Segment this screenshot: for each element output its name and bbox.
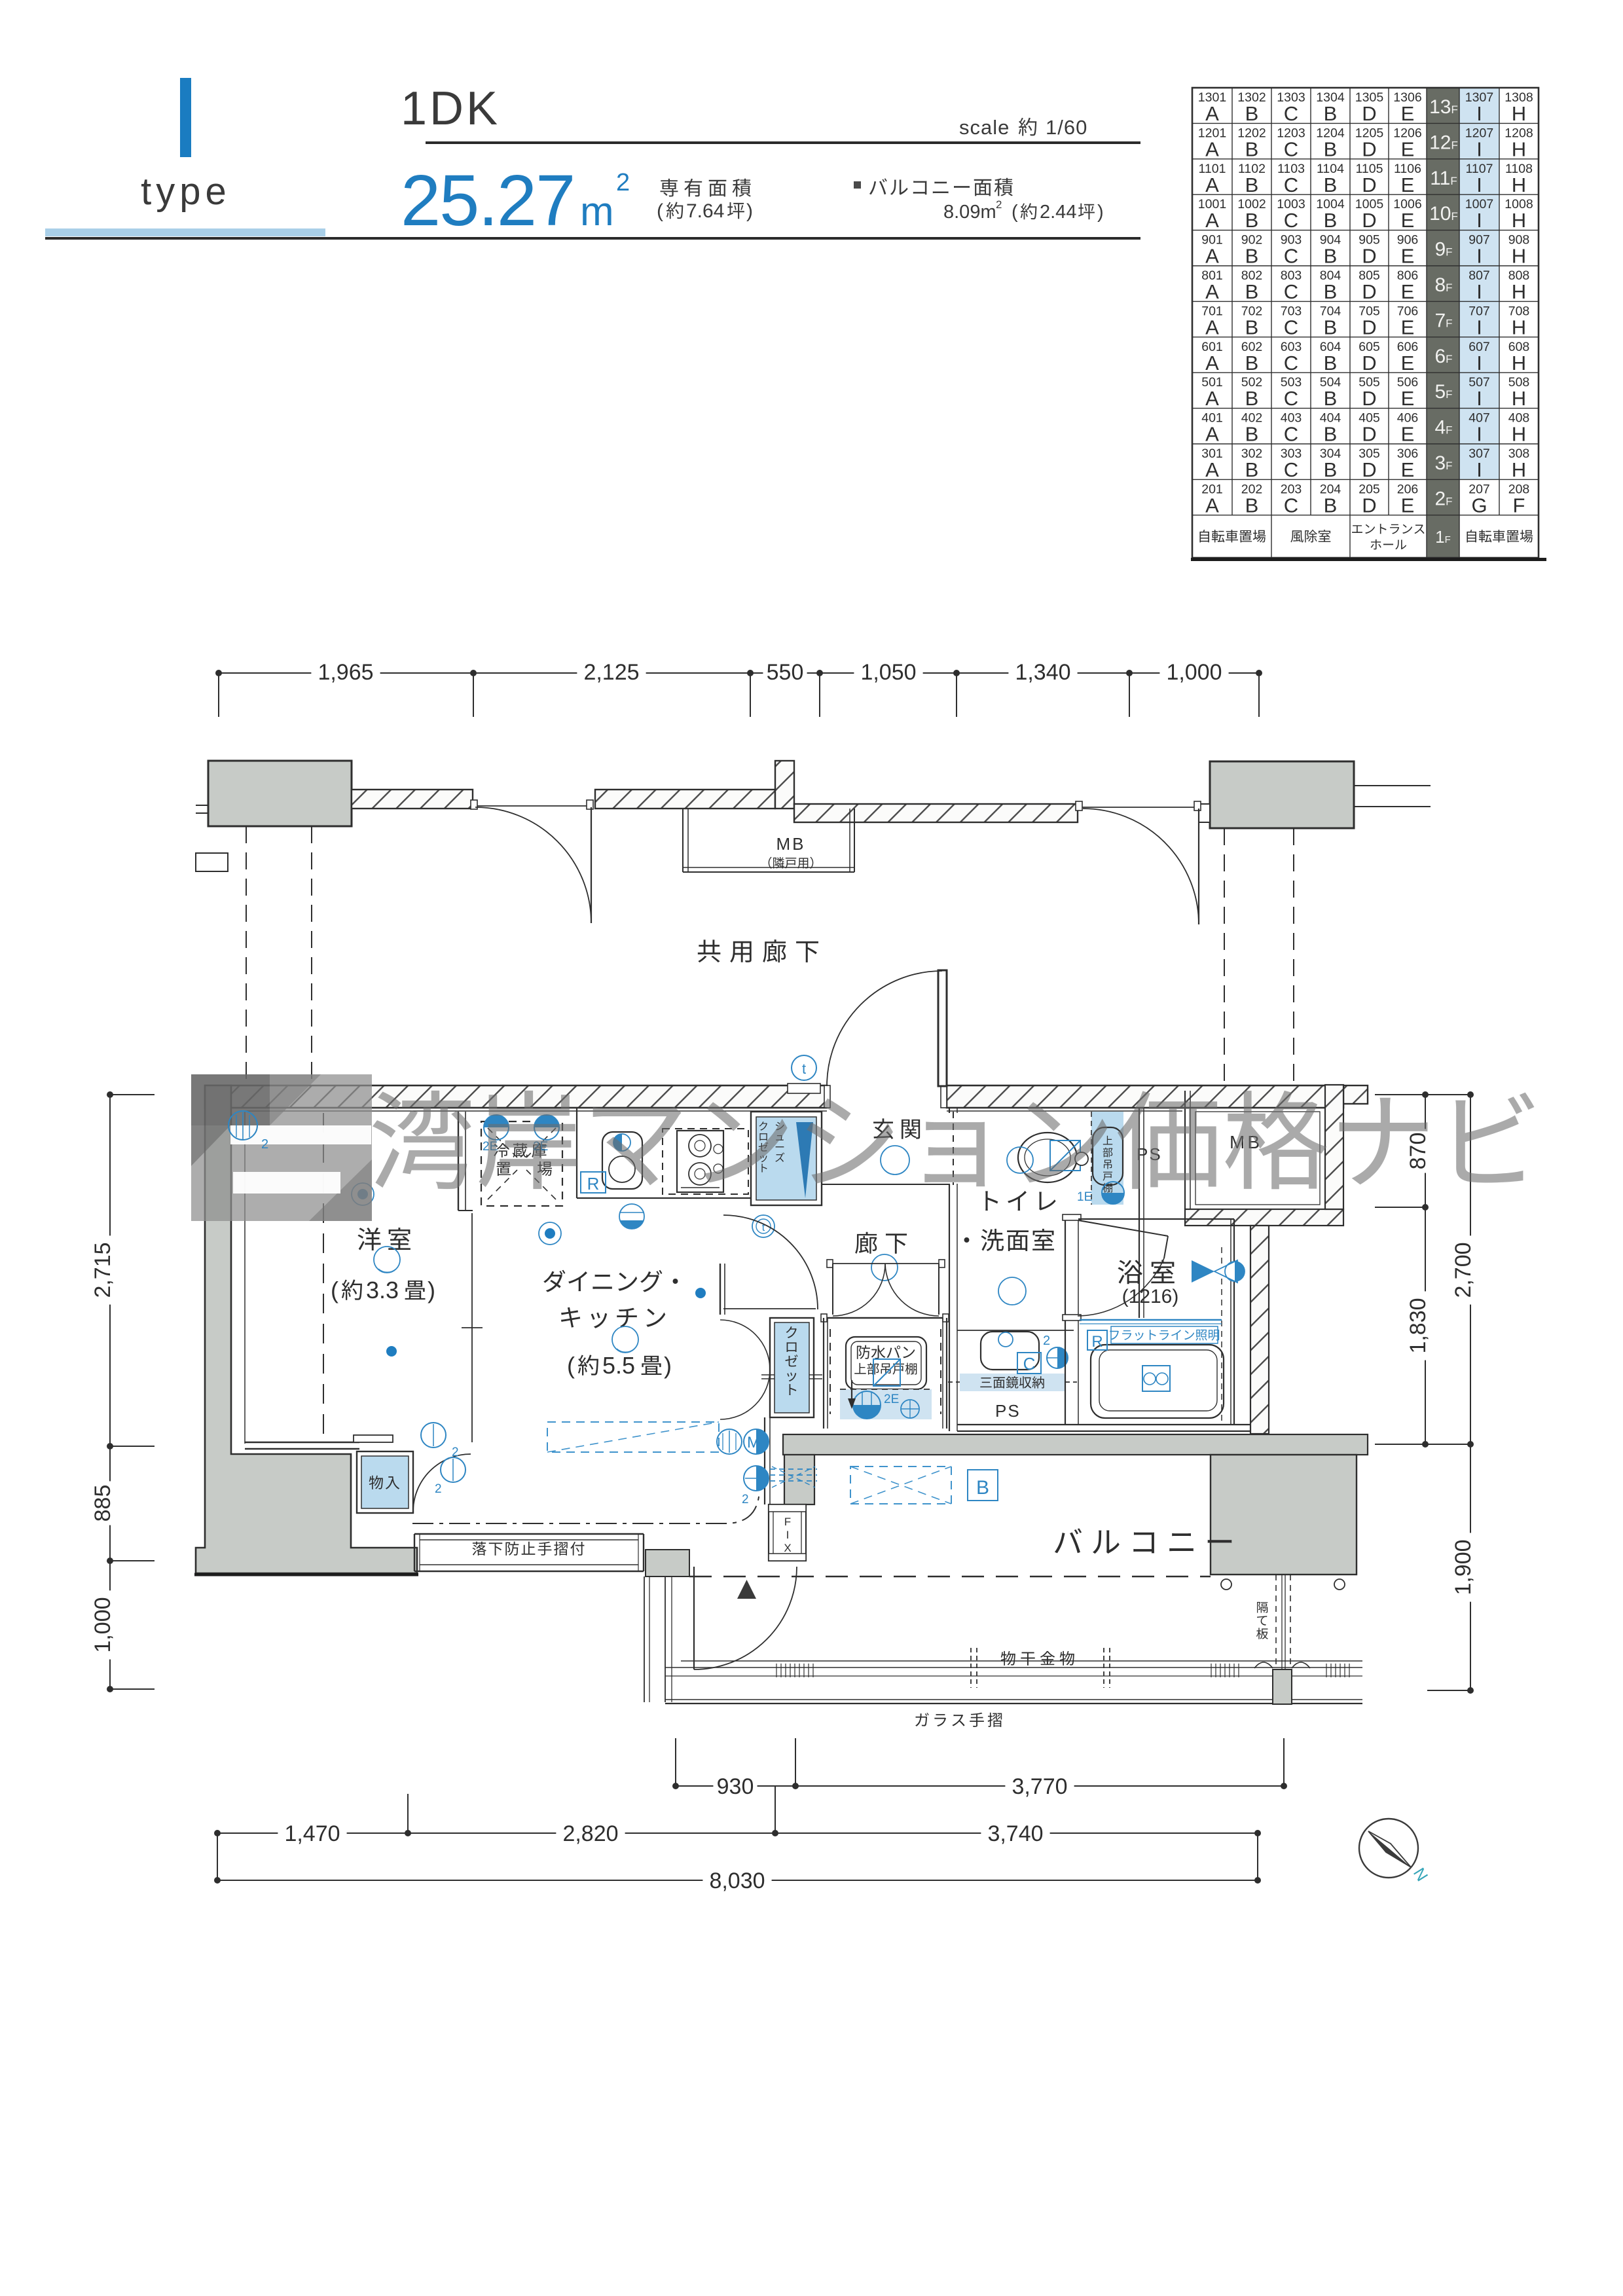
svg-text:A: A bbox=[1205, 209, 1219, 232]
svg-text:t: t bbox=[802, 1061, 806, 1077]
svg-text:1,340: 1,340 bbox=[1015, 660, 1070, 685]
svg-text:B: B bbox=[1324, 245, 1338, 268]
svg-text:H: H bbox=[1512, 173, 1526, 196]
svg-text:C: C bbox=[1284, 280, 1298, 303]
svg-text:D: D bbox=[1362, 173, 1376, 196]
svg-text:I: I bbox=[1476, 137, 1482, 160]
svg-text:): ) bbox=[1097, 202, 1104, 223]
svg-text:G: G bbox=[1471, 494, 1487, 517]
svg-text:A: A bbox=[1205, 423, 1219, 446]
svg-text:M: M bbox=[747, 1434, 760, 1451]
svg-text:E: E bbox=[1401, 173, 1415, 196]
svg-text:A: A bbox=[1205, 280, 1219, 303]
svg-text:E: E bbox=[1401, 280, 1415, 303]
svg-text:B: B bbox=[1245, 387, 1259, 410]
svg-text:X: X bbox=[784, 1542, 791, 1554]
svg-text:(: ( bbox=[567, 1352, 575, 1379]
svg-text:R: R bbox=[587, 1174, 600, 1194]
svg-text:I: I bbox=[1476, 280, 1482, 303]
svg-text:I: I bbox=[1476, 316, 1482, 338]
svg-text:D: D bbox=[1362, 137, 1376, 160]
svg-text:B: B bbox=[1245, 423, 1259, 446]
svg-text:C: C bbox=[1284, 102, 1298, 125]
svg-text:B: B bbox=[1324, 137, 1338, 160]
svg-text:E: E bbox=[1401, 316, 1415, 338]
svg-text:B: B bbox=[1324, 280, 1338, 303]
svg-text:1,470: 1,470 bbox=[284, 1821, 340, 1846]
svg-text:1,900: 1,900 bbox=[1451, 1539, 1476, 1595]
svg-text:D: D bbox=[1362, 245, 1376, 268]
svg-text:D: D bbox=[1362, 352, 1376, 374]
svg-text:PS: PS bbox=[995, 1401, 1021, 1421]
svg-text:C: C bbox=[1284, 423, 1298, 446]
svg-text:H: H bbox=[1512, 352, 1526, 374]
svg-text:1,830: 1,830 bbox=[1406, 1298, 1431, 1353]
svg-text:A: A bbox=[1205, 494, 1219, 517]
svg-text:I: I bbox=[1476, 423, 1482, 446]
svg-text:E: E bbox=[1401, 387, 1415, 410]
svg-text:2,125: 2,125 bbox=[583, 660, 639, 685]
svg-text:B: B bbox=[1245, 458, 1259, 481]
svg-text:B: B bbox=[1245, 280, 1259, 303]
svg-text:type: type bbox=[141, 170, 231, 213]
svg-text:B: B bbox=[1324, 352, 1338, 374]
svg-text:8.09m: 8.09m bbox=[943, 202, 996, 223]
svg-text:C: C bbox=[1284, 494, 1298, 517]
svg-text:F: F bbox=[1513, 494, 1525, 517]
svg-text:2: 2 bbox=[616, 169, 630, 196]
svg-text:A: A bbox=[1205, 352, 1219, 374]
svg-text:B: B bbox=[1324, 494, 1338, 517]
svg-text:1,050: 1,050 bbox=[860, 660, 916, 685]
svg-text:C: C bbox=[1284, 173, 1298, 196]
svg-text:B: B bbox=[1245, 173, 1259, 196]
svg-text:B: B bbox=[1245, 352, 1259, 374]
svg-text:H: H bbox=[1512, 280, 1526, 303]
svg-text:B: B bbox=[1324, 387, 1338, 410]
svg-text:PS: PS bbox=[1137, 1144, 1162, 1164]
svg-text:3,740: 3,740 bbox=[987, 1821, 1043, 1846]
svg-text:3,770: 3,770 bbox=[1012, 1774, 1067, 1799]
svg-text:I: I bbox=[1476, 209, 1482, 232]
svg-text:D: D bbox=[1362, 280, 1376, 303]
svg-text:A: A bbox=[1205, 387, 1219, 410]
svg-text:870: 870 bbox=[1406, 1133, 1431, 1170]
svg-text:930: 930 bbox=[717, 1774, 754, 1799]
svg-text:D: D bbox=[1362, 102, 1376, 125]
svg-text:C: C bbox=[1023, 1354, 1036, 1374]
svg-text:I: I bbox=[1476, 245, 1482, 268]
svg-text:scale: scale bbox=[959, 116, 1010, 139]
svg-text:2: 2 bbox=[996, 198, 1002, 211]
svg-text:1,000: 1,000 bbox=[90, 1597, 115, 1652]
svg-text:D: D bbox=[1362, 423, 1376, 446]
svg-text:H: H bbox=[1512, 458, 1526, 481]
svg-text:885: 885 bbox=[90, 1485, 115, 1522]
svg-text:3.3: 3.3 bbox=[366, 1277, 399, 1303]
svg-text:H: H bbox=[1512, 423, 1526, 446]
svg-text:(: ( bbox=[1012, 202, 1018, 223]
svg-text:2: 2 bbox=[742, 1493, 749, 1506]
svg-text:5.5: 5.5 bbox=[602, 1352, 635, 1379]
svg-text:D: D bbox=[1362, 316, 1376, 338]
svg-text:B: B bbox=[1245, 316, 1259, 338]
svg-text:H: H bbox=[1512, 137, 1526, 160]
svg-text:1DK: 1DK bbox=[401, 82, 500, 135]
svg-text:B: B bbox=[1245, 245, 1259, 268]
svg-text:A: A bbox=[1205, 245, 1219, 268]
svg-text:C: C bbox=[1284, 458, 1298, 481]
svg-text:B: B bbox=[1324, 173, 1338, 196]
svg-text:B: B bbox=[1324, 209, 1338, 232]
svg-text:): ) bbox=[664, 1352, 672, 1379]
svg-text:H: H bbox=[1512, 102, 1526, 125]
svg-text:E: E bbox=[1401, 423, 1415, 446]
svg-text:(: ( bbox=[657, 200, 663, 222]
svg-text:C: C bbox=[1284, 245, 1298, 268]
svg-text:A: A bbox=[1205, 316, 1219, 338]
svg-text:): ) bbox=[746, 200, 753, 222]
svg-text:I: I bbox=[1476, 458, 1482, 481]
svg-text:C: C bbox=[1284, 352, 1298, 374]
svg-text:A: A bbox=[1205, 458, 1219, 481]
svg-text:F: F bbox=[784, 1516, 791, 1528]
svg-text:): ) bbox=[428, 1277, 435, 1303]
svg-text:8,030: 8,030 bbox=[709, 1868, 765, 1893]
svg-text:E: E bbox=[1401, 458, 1415, 481]
svg-text:B: B bbox=[1245, 209, 1259, 232]
svg-text:1/60: 1/60 bbox=[1046, 116, 1087, 139]
svg-text:B: B bbox=[1324, 458, 1338, 481]
svg-text:550: 550 bbox=[767, 660, 804, 685]
svg-text:2,820: 2,820 bbox=[562, 1821, 618, 1846]
svg-text:H: H bbox=[1512, 245, 1526, 268]
svg-text:2: 2 bbox=[435, 1482, 442, 1496]
svg-text:B: B bbox=[1245, 102, 1259, 125]
svg-text:C: C bbox=[1284, 387, 1298, 410]
svg-text:I: I bbox=[1476, 102, 1482, 125]
svg-text:B: B bbox=[1245, 137, 1259, 160]
svg-text:2: 2 bbox=[1043, 1334, 1050, 1348]
svg-text:C: C bbox=[1284, 316, 1298, 338]
svg-text:I: I bbox=[1476, 173, 1482, 196]
svg-text:25.27: 25.27 bbox=[401, 160, 574, 241]
svg-text:2E: 2E bbox=[884, 1393, 899, 1406]
svg-text:I: I bbox=[1476, 352, 1482, 374]
svg-text:B: B bbox=[976, 1477, 989, 1499]
svg-text:1,965: 1,965 bbox=[318, 660, 373, 685]
svg-text:1,000: 1,000 bbox=[1166, 660, 1222, 685]
svg-text:H: H bbox=[1512, 387, 1526, 410]
svg-text:E: E bbox=[1401, 494, 1415, 517]
svg-text:I: I bbox=[1476, 387, 1482, 410]
svg-text:D: D bbox=[1362, 458, 1376, 481]
svg-text:(: ( bbox=[331, 1277, 338, 1303]
svg-text:7.64: 7.64 bbox=[686, 200, 724, 222]
svg-text:MB: MB bbox=[776, 834, 806, 854]
svg-text:B: B bbox=[1245, 494, 1259, 517]
svg-text:D: D bbox=[1362, 494, 1376, 517]
svg-text:B: B bbox=[1324, 316, 1338, 338]
svg-text:2.44: 2.44 bbox=[1040, 202, 1076, 223]
svg-text:m: m bbox=[580, 189, 614, 234]
svg-text:1E: 1E bbox=[1077, 1190, 1092, 1204]
svg-text:E: E bbox=[1401, 352, 1415, 374]
svg-text:R: R bbox=[1091, 1333, 1103, 1351]
svg-text:E: E bbox=[1401, 245, 1415, 268]
svg-text:H: H bbox=[1512, 209, 1526, 232]
svg-text:A: A bbox=[1205, 173, 1219, 196]
svg-text:2: 2 bbox=[261, 1137, 268, 1152]
svg-text:A: A bbox=[1205, 137, 1219, 160]
svg-text:2,715: 2,715 bbox=[90, 1242, 115, 1298]
svg-text:E: E bbox=[1401, 209, 1415, 232]
svg-text:2,700: 2,700 bbox=[1451, 1242, 1476, 1298]
svg-text:E: E bbox=[1401, 137, 1415, 160]
svg-text:C: C bbox=[1284, 209, 1298, 232]
svg-text:D: D bbox=[1362, 209, 1376, 232]
svg-text:(1216): (1216) bbox=[1122, 1286, 1179, 1307]
svg-text:E: E bbox=[1401, 102, 1415, 125]
svg-text:D: D bbox=[1362, 387, 1376, 410]
svg-text:B: B bbox=[1324, 423, 1338, 446]
svg-text:C: C bbox=[1284, 137, 1298, 160]
svg-text:H: H bbox=[1512, 316, 1526, 338]
svg-text:B: B bbox=[1324, 102, 1338, 125]
svg-text:I: I bbox=[786, 1529, 790, 1541]
svg-text:A: A bbox=[1205, 102, 1219, 125]
